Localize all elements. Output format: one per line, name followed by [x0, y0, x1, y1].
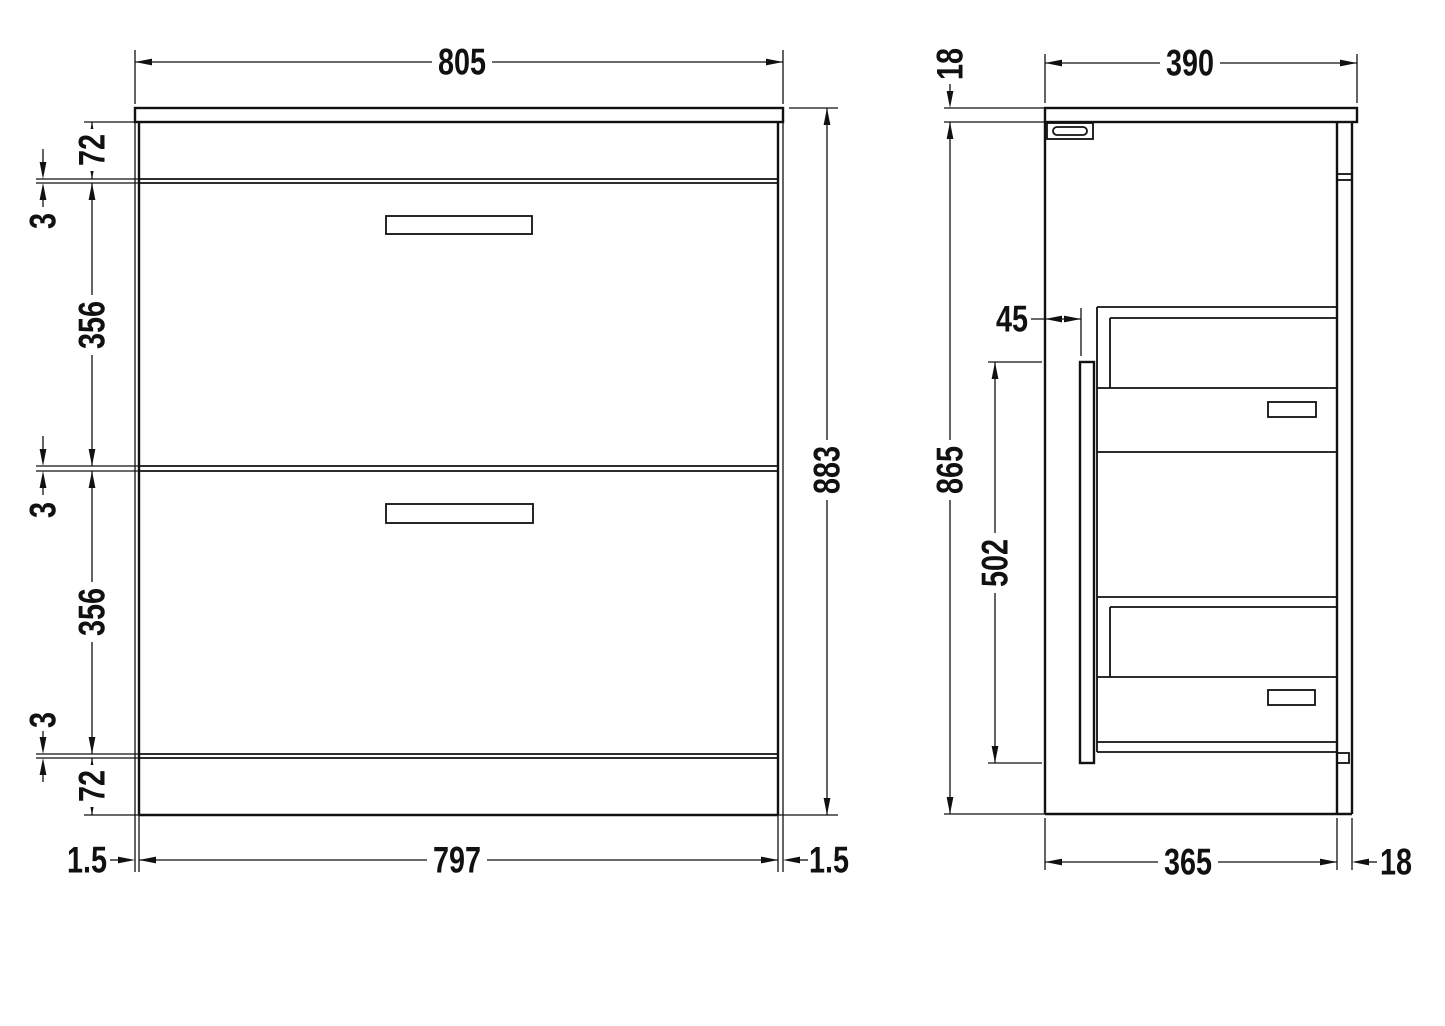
- dim-side-carcass-depth: 365: [1045, 842, 1337, 883]
- front-worktop: [135, 108, 783, 122]
- front-overall-height-label: 883: [807, 446, 848, 494]
- front-drawer-gaps: [139, 179, 778, 758]
- front-lower-drawer-handle: [386, 504, 533, 523]
- front-view: [135, 108, 783, 815]
- side-view: [1045, 108, 1357, 814]
- dim-side-back-panel: 18: [1352, 842, 1412, 883]
- side-overall-depth-label: 390: [1166, 43, 1214, 84]
- side-carcass-depth-label: 365: [1164, 842, 1212, 883]
- side-lower-drawer-handle: [1268, 690, 1315, 705]
- dim-front-overhang-left: 1.5: [67, 840, 135, 881]
- dim-front-overall-width: 805: [135, 42, 783, 83]
- side-drawer-zone-height-label: 502: [975, 539, 1016, 587]
- front-upper-drawer-handle: [386, 216, 532, 234]
- dim-front-top-rail: 72: [72, 122, 113, 179]
- front-upper-drawer-label: 356: [72, 301, 113, 349]
- dim-front-gap-middle: 3: [23, 436, 64, 518]
- dim-side-overall-depth: 390: [1045, 43, 1357, 84]
- front-extension-lines: [36, 50, 838, 872]
- dim-side-drawer-zone-height: 502: [975, 362, 1016, 763]
- side-back-panel-notch: [1337, 753, 1349, 763]
- side-extension-lines: [944, 54, 1357, 870]
- technical-drawing: 805 72 3 356 3: [0, 0, 1445, 1021]
- dim-side-drawer-inset: 45: [996, 299, 1081, 340]
- front-bottom-rail-label: 72: [72, 770, 113, 802]
- dim-front-bottom-rail: 72: [72, 758, 113, 815]
- dim-front-gap-bottom: 3: [23, 712, 64, 782]
- front-gap-middle-label: 3: [23, 502, 64, 518]
- front-overall-width-label: 805: [438, 42, 486, 83]
- front-lower-drawer-label: 356: [72, 588, 113, 636]
- side-back-panel-label: 18: [1380, 842, 1412, 883]
- dim-side-cabinet-height: 865: [930, 122, 971, 814]
- dim-front-lower-drawer: 356: [72, 471, 113, 754]
- front-overhang-right-label: 1.5: [809, 840, 849, 881]
- dim-front-overhang-right: 1.5: [783, 840, 849, 881]
- side-worktop: [1045, 108, 1357, 122]
- front-top-rail-label: 72: [72, 134, 113, 166]
- dim-front-gap-top: 3: [23, 149, 64, 229]
- side-drawer-boxes: [1097, 307, 1337, 752]
- front-gap-bottom-label: 3: [23, 712, 64, 728]
- side-drawer-inset-label: 45: [996, 299, 1028, 340]
- side-upper-drawer-handle: [1268, 402, 1316, 417]
- front-overhang-left-label: 1.5: [67, 840, 107, 881]
- front-gap-top-label: 3: [23, 213, 64, 229]
- dim-front-carcass-width: 797: [139, 840, 778, 881]
- side-worktop-thickness-label: 18: [930, 48, 971, 80]
- front-carcass-width-label: 797: [433, 840, 481, 881]
- dim-front-overall-height: 883: [807, 108, 848, 815]
- dim-side-worktop-thickness: 18: [930, 48, 971, 108]
- side-drawer-front-panel: [1080, 362, 1094, 763]
- side-cabinet-height-label: 865: [930, 446, 971, 494]
- side-fixing-bracket: [1047, 123, 1093, 139]
- dim-front-upper-drawer: 356: [72, 183, 113, 466]
